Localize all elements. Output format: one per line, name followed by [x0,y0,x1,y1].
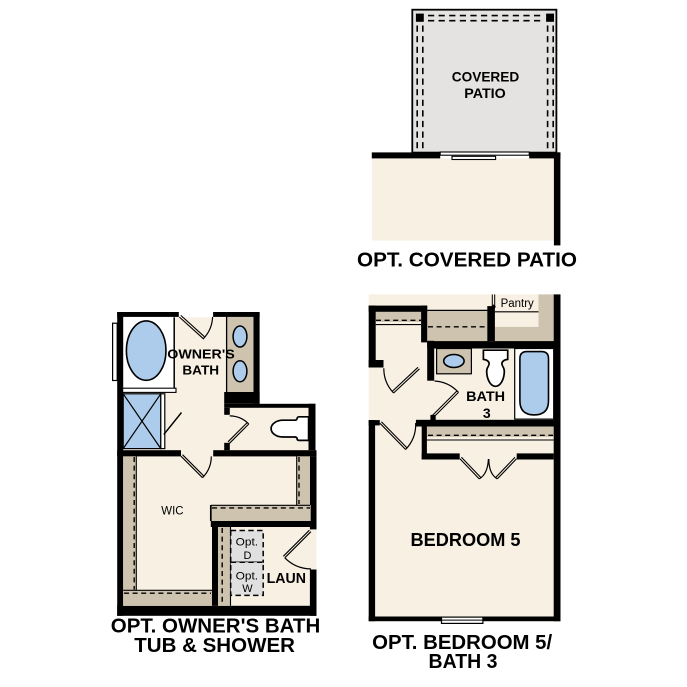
svg-text:OWNER'S: OWNER'S [167,348,235,362]
svg-text:D: D [244,550,252,562]
svg-text:COVERED: COVERED [452,69,520,84]
svg-text:Pantry: Pantry [501,298,534,310]
svg-text:OPT. COVERED PATIO: OPT. COVERED PATIO [357,249,577,271]
svg-text:3: 3 [483,405,491,421]
svg-text:BEDROOM 5: BEDROOM 5 [411,529,521,550]
svg-text:WIC: WIC [161,503,184,517]
svg-text:LAUN: LAUN [267,571,306,587]
svg-text:W: W [242,583,253,595]
svg-text:BATH: BATH [466,388,505,404]
svg-text:TUB & SHOWER: TUB & SHOWER [134,635,295,657]
svg-text:OPT. OWNER'S BATH: OPT. OWNER'S BATH [111,615,321,637]
svg-text:PATIO: PATIO [464,86,506,101]
svg-text:BATH 3: BATH 3 [429,651,498,673]
svg-text:Opt.: Opt. [236,537,258,549]
svg-text:Opt.: Opt. [236,571,258,583]
svg-text:BATH: BATH [182,363,219,377]
